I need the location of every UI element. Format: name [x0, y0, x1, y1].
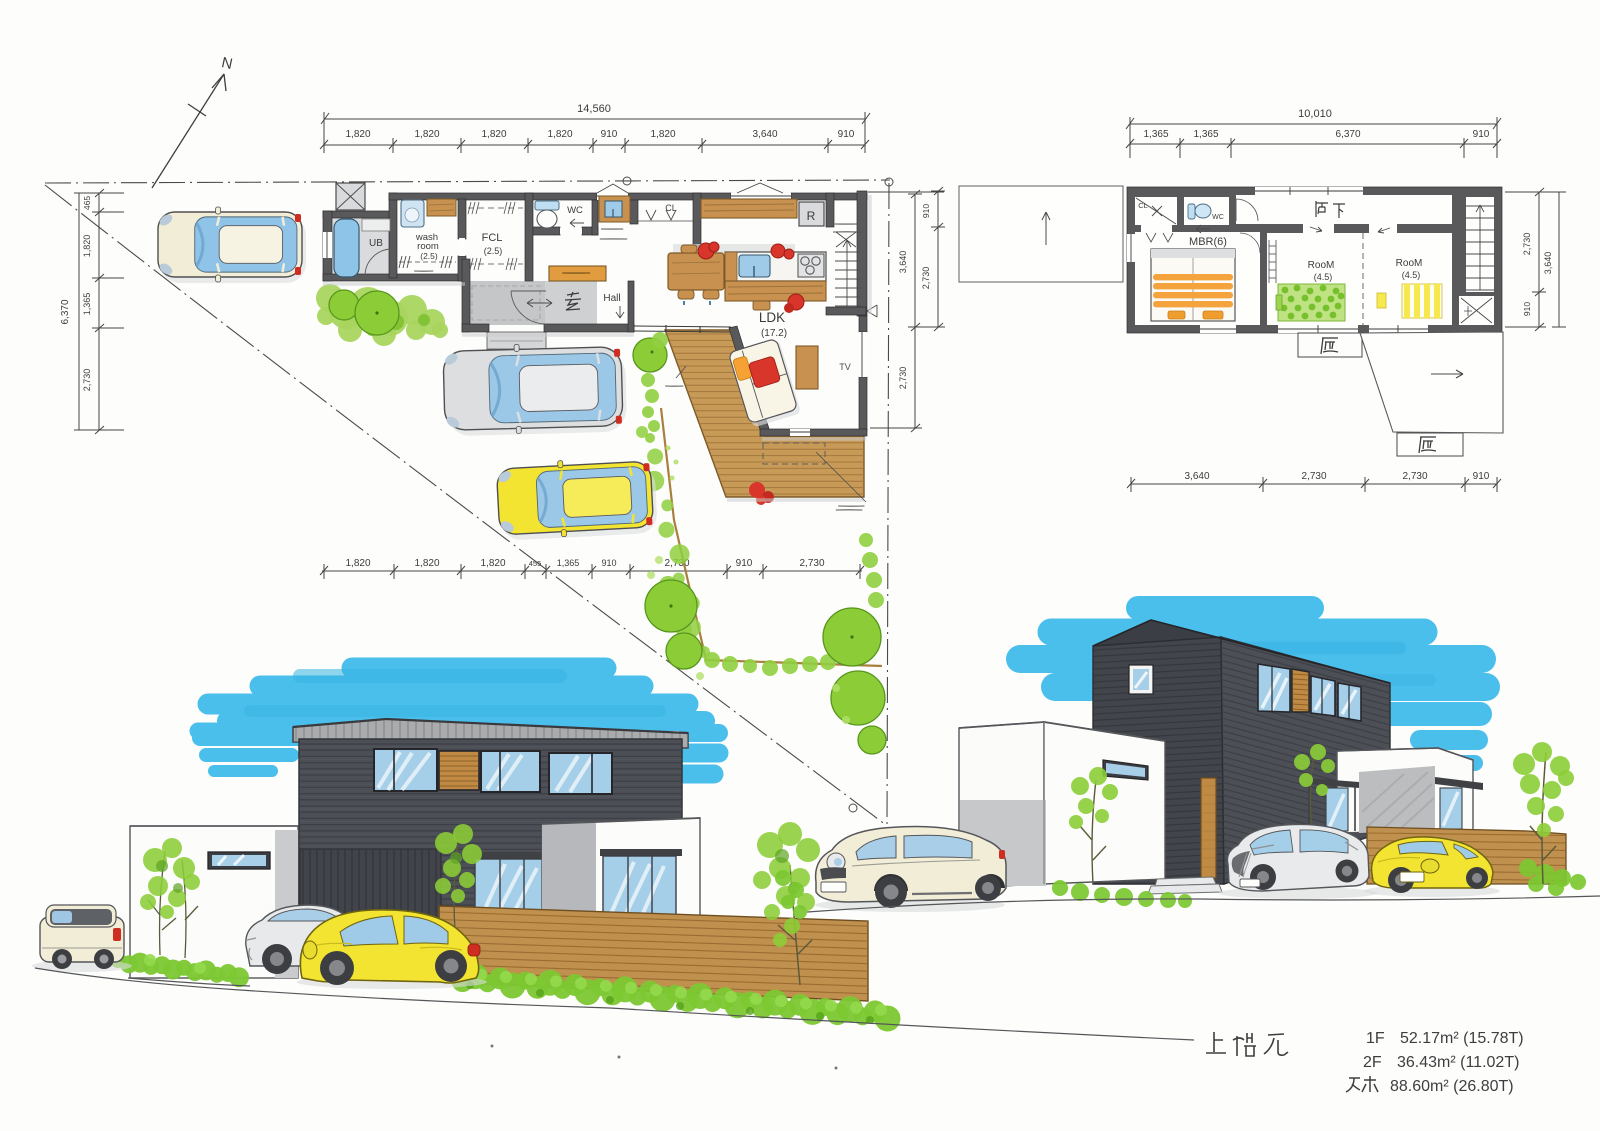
- svg-text:14,560: 14,560: [577, 103, 611, 115]
- svg-text:Hall: Hall: [603, 293, 620, 304]
- svg-text:MBR(6): MBR(6): [1189, 236, 1227, 248]
- svg-text:6,370: 6,370: [60, 299, 71, 324]
- svg-text:RooM: RooM: [1396, 258, 1423, 269]
- svg-text:(4.5): (4.5): [1402, 270, 1421, 280]
- svg-text:R: R: [807, 209, 816, 223]
- svg-text:2,730: 2,730: [82, 369, 92, 392]
- svg-text:2F: 2F: [1363, 1054, 1382, 1071]
- svg-text:3,640: 3,640: [898, 251, 908, 274]
- svg-text:1F: 1F: [1366, 1030, 1385, 1047]
- svg-text:UB: UB: [369, 238, 383, 249]
- svg-text:2,730: 2,730: [799, 558, 824, 569]
- svg-text:2,730: 2,730: [898, 367, 908, 390]
- svg-text:2,730: 2,730: [1301, 471, 1326, 482]
- svg-text:1,365: 1,365: [1193, 129, 1218, 140]
- svg-text:1,820: 1,820: [345, 558, 370, 569]
- svg-text:(2.5): (2.5): [484, 246, 503, 256]
- svg-text:910: 910: [838, 129, 855, 140]
- svg-text:1,365: 1,365: [1143, 129, 1168, 140]
- svg-text:TV: TV: [839, 362, 851, 372]
- svg-text:910: 910: [921, 204, 931, 218]
- svg-text:3,640: 3,640: [752, 129, 777, 140]
- svg-text:1,365: 1,365: [82, 293, 92, 316]
- svg-text:52.17m² (15.78T): 52.17m² (15.78T): [1400, 1030, 1524, 1047]
- svg-text:1,820: 1,820: [481, 129, 506, 140]
- svg-text:2,730: 2,730: [921, 267, 931, 290]
- svg-text:RooM: RooM: [1308, 260, 1335, 271]
- svg-text:88.60m² (26.80T): 88.60m² (26.80T): [1390, 1078, 1514, 1095]
- svg-text:1,365: 1,365: [557, 558, 580, 568]
- svg-text:3,640: 3,640: [1184, 471, 1209, 482]
- svg-text:2,730: 2,730: [1402, 471, 1427, 482]
- svg-text:910: 910: [736, 558, 753, 569]
- svg-text:WC: WC: [1212, 214, 1224, 221]
- svg-text:10,010: 10,010: [1298, 108, 1332, 120]
- svg-text:6,370: 6,370: [1335, 129, 1360, 140]
- svg-text:1,820: 1,820: [480, 558, 505, 569]
- svg-text:(2.5): (2.5): [420, 251, 438, 261]
- svg-text:(4.5): (4.5): [1314, 272, 1333, 282]
- svg-text:1,820: 1,820: [82, 235, 92, 258]
- svg-text:2,730: 2,730: [1522, 233, 1532, 256]
- svg-text:910: 910: [601, 129, 618, 140]
- svg-text:1,820: 1,820: [547, 129, 572, 140]
- svg-text:CL: CL: [1138, 201, 1148, 210]
- svg-text:1,820: 1,820: [650, 129, 675, 140]
- svg-text:910: 910: [601, 558, 616, 568]
- svg-text:(17.2): (17.2): [761, 328, 787, 339]
- svg-text:465: 465: [82, 196, 92, 210]
- svg-text:1,820: 1,820: [345, 129, 370, 140]
- svg-text:455: 455: [529, 559, 542, 568]
- svg-text:36.43m² (11.02T): 36.43m² (11.02T): [1397, 1054, 1519, 1071]
- svg-text:WC: WC: [567, 205, 583, 216]
- svg-text:1,820: 1,820: [414, 558, 439, 569]
- svg-text:3,640: 3,640: [1543, 252, 1553, 275]
- svg-text:LDK: LDK: [759, 310, 785, 325]
- svg-text:1,820: 1,820: [414, 129, 439, 140]
- svg-text:910: 910: [1522, 302, 1532, 316]
- svg-text:FCL: FCL: [482, 232, 503, 244]
- svg-text:910: 910: [1473, 129, 1490, 140]
- svg-text:910: 910: [1473, 471, 1490, 482]
